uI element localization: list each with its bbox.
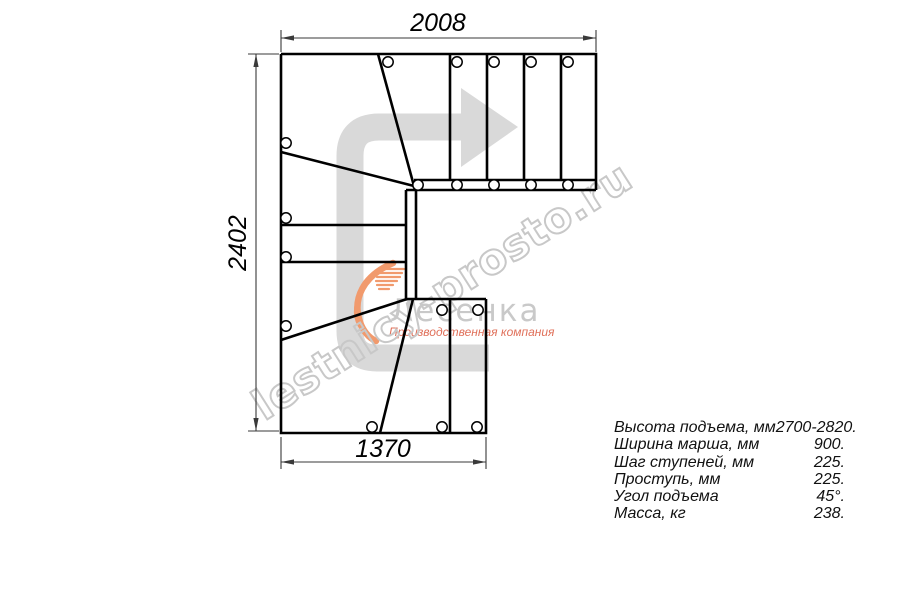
spec-row-rise-height: Высота подъема, мм 2700-2820. (614, 419, 845, 436)
spec-value: 225. (814, 471, 845, 488)
spec-label: Угол подъема (614, 488, 719, 505)
spec-row-flight-width: Ширина марша, мм 900. (614, 436, 845, 453)
spec-value: 225. (814, 454, 845, 471)
spec-label: Ширина марша, мм (614, 436, 759, 453)
spec-value: 900. (814, 436, 845, 453)
spec-value: 45°. (816, 488, 845, 505)
dimension-top-value: 2008 (409, 9, 466, 37)
dimension-top: 2008 (281, 9, 596, 52)
spec-row-rise-angle: Угол подъема 45°. (614, 488, 845, 505)
spec-label: Проступь, мм (614, 471, 720, 488)
spec-label: Шаг ступеней, мм (614, 454, 754, 471)
dimension-bottom-value: 1370 (355, 435, 411, 463)
spec-row-step-pitch: Шаг ступеней, мм 225. (614, 454, 845, 471)
spec-row-mass: Масса, кг 238. (614, 505, 845, 522)
dimension-bottom: 1370 (281, 435, 486, 469)
watermark-text: lestnicy-prosto.ru (243, 152, 640, 430)
spec-value: 238. (814, 505, 845, 522)
spec-label: Высота подъема, мм (614, 419, 776, 436)
spec-table: Высота подъема, мм 2700-2820. Ширина мар… (614, 419, 845, 523)
spec-value: 2700-2820. (776, 419, 857, 436)
spec-row-tread: Проступь, мм 225. (614, 471, 845, 488)
staircase-drawing-page: Лесенка Производственная компания lestni… (0, 0, 900, 600)
spec-label: Масса, кг (614, 505, 686, 522)
direction-arrow-head (461, 88, 518, 167)
dimension-left-value: 2402 (224, 215, 252, 272)
